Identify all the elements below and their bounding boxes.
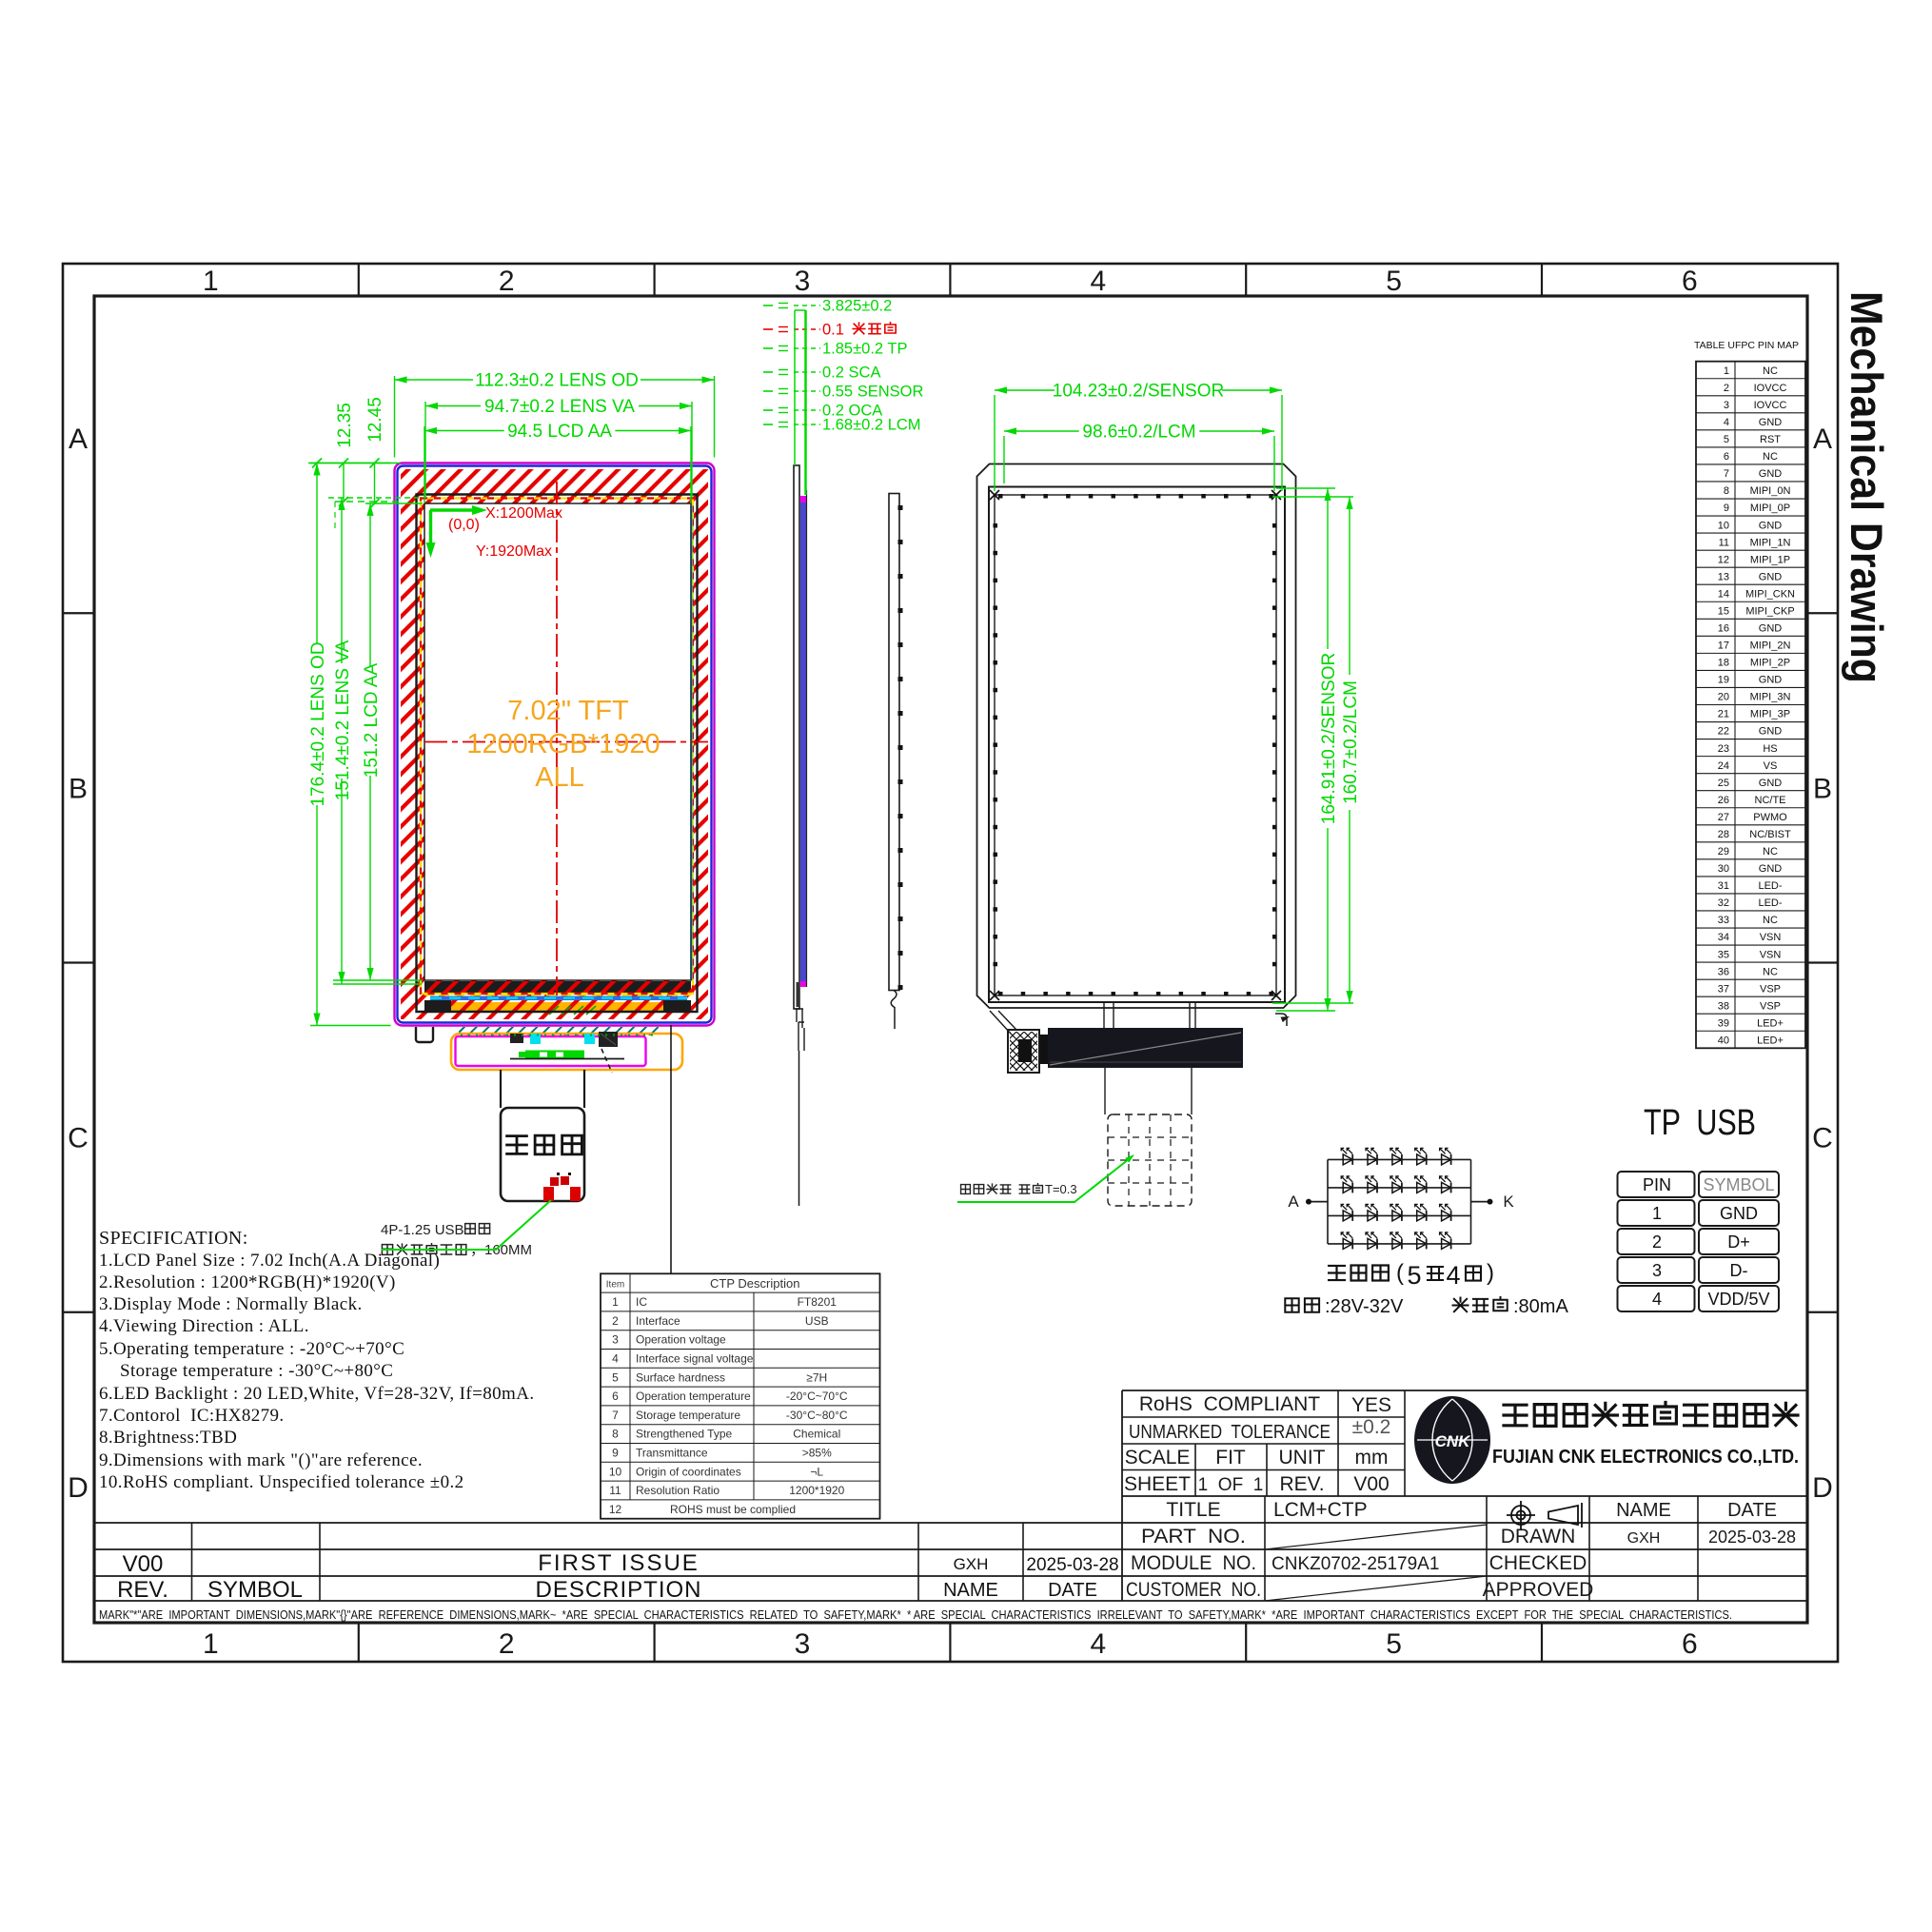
svg-text:VSN: VSN xyxy=(1760,949,1782,960)
svg-text:ALL: ALL xyxy=(535,762,584,793)
svg-text:4: 4 xyxy=(612,1352,619,1366)
svg-text:Chemical: Chemical xyxy=(793,1428,840,1441)
svg-text:16: 16 xyxy=(1718,623,1729,635)
svg-text:5: 5 xyxy=(612,1370,619,1384)
svg-text:FIRST ISSUE: FIRST ISSUE xyxy=(538,1550,700,1576)
svg-text:A: A xyxy=(1288,1193,1299,1211)
svg-text:2: 2 xyxy=(499,1628,515,1660)
svg-text:VSP: VSP xyxy=(1760,983,1781,995)
svg-text:21: 21 xyxy=(1718,709,1729,720)
svg-text:APPROVED: APPROVED xyxy=(1483,1579,1594,1601)
svg-text:UNMARKED TOLERANCE: UNMARKED TOLERANCE xyxy=(1129,1422,1331,1443)
svg-text:0.2 SCA: 0.2 SCA xyxy=(822,365,880,382)
svg-text:5: 5 xyxy=(1386,1628,1402,1660)
svg-text:MIPI_2P: MIPI_2P xyxy=(1750,658,1790,669)
svg-text:GND: GND xyxy=(1720,1204,1758,1223)
svg-text:Mechanical Drawing: Mechanical Drawing xyxy=(1842,291,1892,683)
svg-text:6: 6 xyxy=(1682,266,1698,297)
svg-text:FT8201: FT8201 xyxy=(798,1295,838,1309)
svg-text:SYMBOL: SYMBOL xyxy=(1703,1175,1774,1194)
svg-text:GND: GND xyxy=(1759,675,1783,686)
svg-text:PIN: PIN xyxy=(1643,1175,1671,1194)
svg-text:Interface signal voltage: Interface signal voltage xyxy=(636,1352,754,1366)
svg-text:20: 20 xyxy=(1718,692,1729,703)
svg-text:T=0.3: T=0.3 xyxy=(1045,1182,1077,1196)
svg-text:19: 19 xyxy=(1718,675,1729,686)
svg-text:Strengthened Type: Strengthened Type xyxy=(636,1428,733,1441)
svg-text:1.85±0.2 TP: 1.85±0.2 TP xyxy=(822,341,907,358)
svg-text:GXH: GXH xyxy=(954,1555,989,1573)
svg-text:2: 2 xyxy=(499,266,515,297)
svg-text:151.4±0.2 LENS VA: 151.4±0.2 LENS VA xyxy=(333,640,353,800)
svg-text:VSP: VSP xyxy=(1760,1000,1781,1012)
svg-text:K: K xyxy=(1503,1193,1514,1211)
svg-text:36: 36 xyxy=(1718,966,1729,977)
svg-text:1 OF 1: 1 OF 1 xyxy=(1198,1475,1264,1495)
svg-text:Storage temperature: Storage temperature xyxy=(636,1409,740,1422)
svg-text:Y:1920Max: Y:1920Max xyxy=(476,543,552,560)
svg-text:RoHS COMPLIANT: RoHS COMPLIANT xyxy=(1139,1393,1320,1415)
svg-text:32: 32 xyxy=(1718,897,1729,909)
svg-text:Surface hardness: Surface hardness xyxy=(636,1370,725,1384)
svg-text:MIPI_CKN: MIPI_CKN xyxy=(1745,588,1795,600)
svg-text:mm: mm xyxy=(1355,1447,1389,1469)
svg-text:REV.: REV. xyxy=(1279,1473,1324,1495)
svg-text:6: 6 xyxy=(612,1390,619,1403)
svg-text:MODULE NO.: MODULE NO. xyxy=(1131,1552,1256,1574)
svg-text:D-: D- xyxy=(1730,1261,1748,1280)
svg-text:29: 29 xyxy=(1718,846,1729,858)
svg-text:5: 5 xyxy=(1724,434,1729,445)
svg-text:UNIT: UNIT xyxy=(1279,1447,1326,1469)
svg-text:3: 3 xyxy=(1652,1261,1662,1280)
svg-text:5: 5 xyxy=(1407,1261,1421,1290)
svg-text:160.7±0.2/LCM: 160.7±0.2/LCM xyxy=(1341,680,1361,804)
svg-text:2: 2 xyxy=(1652,1232,1662,1252)
svg-text:GND: GND xyxy=(1759,623,1783,635)
svg-text:38: 38 xyxy=(1718,1000,1729,1012)
svg-text:): ) xyxy=(1487,1260,1494,1286)
svg-text:1: 1 xyxy=(1652,1204,1662,1223)
svg-text:3.Display Mode : Normally Blac: 3.Display Mode : Normally Black. xyxy=(99,1294,363,1314)
svg-text:MIPI_3P: MIPI_3P xyxy=(1750,709,1790,720)
svg-text:164.91±0.2/SENSOR: 164.91±0.2/SENSOR xyxy=(1319,653,1339,824)
svg-text:18: 18 xyxy=(1718,658,1729,669)
svg-text:>85%: >85% xyxy=(802,1447,832,1460)
svg-text:23: 23 xyxy=(1718,743,1729,755)
svg-text:13: 13 xyxy=(1718,571,1729,582)
svg-text:GND: GND xyxy=(1759,468,1783,480)
svg-text:SCALE: SCALE xyxy=(1125,1447,1191,1469)
svg-text:HS: HS xyxy=(1763,743,1777,755)
svg-text:TABLE UFPC PIN MAP: TABLE UFPC PIN MAP xyxy=(1694,340,1799,351)
svg-text:10: 10 xyxy=(1718,520,1729,531)
svg-text:9.Dimensions with mark "()"are: 9.Dimensions with mark "()"are reference… xyxy=(99,1450,423,1470)
svg-text:B: B xyxy=(69,773,88,804)
svg-text:30: 30 xyxy=(1718,863,1729,875)
svg-text:LED-: LED- xyxy=(1758,897,1782,909)
svg-text:IC: IC xyxy=(636,1295,647,1309)
svg-text:DESCRIPTION: DESCRIPTION xyxy=(535,1577,701,1603)
svg-text:22: 22 xyxy=(1718,726,1729,738)
svg-text:1.LCD Panel Size : 7.02 Inch(A: 1.LCD Panel Size : 7.02 Inch(A.A Diagona… xyxy=(99,1251,440,1271)
svg-text:VS: VS xyxy=(1764,760,1778,772)
svg-text:11: 11 xyxy=(609,1484,621,1497)
svg-text:15: 15 xyxy=(1718,605,1729,617)
svg-text:5: 5 xyxy=(1386,266,1402,297)
svg-text:±0.2: ±0.2 xyxy=(1352,1416,1391,1438)
svg-text::80mA: :80mA xyxy=(1513,1296,1568,1317)
svg-text:TP USB: TP USB xyxy=(1644,1103,1756,1143)
svg-text:NAME: NAME xyxy=(1616,1500,1671,1521)
svg-text:Item: Item xyxy=(606,1279,624,1290)
svg-text:1: 1 xyxy=(203,1628,219,1660)
svg-text:151.2 LCD AA: 151.2 LCD AA xyxy=(362,662,382,778)
svg-text:1: 1 xyxy=(612,1295,619,1309)
svg-text:V00: V00 xyxy=(1353,1473,1389,1495)
svg-text:≥7H: ≥7H xyxy=(806,1370,827,1384)
svg-text:1: 1 xyxy=(203,266,219,297)
svg-text:12.45: 12.45 xyxy=(365,397,385,443)
svg-text:1.68±0.2 LCM: 1.68±0.2 LCM xyxy=(822,417,921,434)
svg-text:MIPI_3N: MIPI_3N xyxy=(1750,692,1791,703)
svg-text:SPECIFICATION:: SPECIFICATION: xyxy=(99,1228,248,1249)
svg-text:NC: NC xyxy=(1763,915,1778,926)
svg-text:11: 11 xyxy=(1719,537,1729,548)
svg-text:Origin of coordinates: Origin of coordinates xyxy=(636,1465,741,1478)
svg-text:8: 8 xyxy=(612,1428,619,1441)
svg-text:NC: NC xyxy=(1763,846,1778,858)
svg-text:CNK: CNK xyxy=(1435,1432,1472,1450)
svg-text:3: 3 xyxy=(612,1333,619,1347)
svg-text:X:1200Max: X:1200Max xyxy=(485,505,562,522)
svg-text:1200RGB*1920: 1200RGB*1920 xyxy=(466,729,660,759)
svg-text:4.Viewing Direction : ALL.: 4.Viewing Direction : ALL. xyxy=(99,1316,309,1336)
svg-text:112.3±0.2 LENS OD: 112.3±0.2 LENS OD xyxy=(475,371,639,391)
svg-text:14: 14 xyxy=(1718,588,1729,600)
svg-text:NC/BIST: NC/BIST xyxy=(1749,829,1791,840)
svg-text:VDD/5V: VDD/5V xyxy=(1707,1290,1769,1309)
svg-text:(0,0): (0,0) xyxy=(448,517,480,533)
svg-text:YES: YES xyxy=(1351,1394,1391,1416)
svg-text:8: 8 xyxy=(1724,485,1729,497)
svg-text:9: 9 xyxy=(612,1447,619,1460)
svg-text:2: 2 xyxy=(612,1314,619,1328)
svg-text:GXH: GXH xyxy=(1627,1530,1661,1547)
svg-text:6.LED Backlight : 20 LED,White: 6.LED Backlight : 20 LED,White, Vf=28-32… xyxy=(99,1384,534,1404)
svg-text:DRAWN: DRAWN xyxy=(1501,1526,1576,1548)
svg-text:V00: V00 xyxy=(123,1551,164,1577)
svg-text:3: 3 xyxy=(1724,400,1729,411)
svg-text:GND: GND xyxy=(1759,726,1783,738)
svg-text:C: C xyxy=(1812,1123,1833,1154)
svg-text:1200*1920: 1200*1920 xyxy=(789,1484,844,1497)
svg-text:12.35: 12.35 xyxy=(335,403,355,448)
svg-text:3: 3 xyxy=(795,266,811,297)
svg-text:SHEET: SHEET xyxy=(1124,1473,1191,1495)
svg-text:3.825±0.2: 3.825±0.2 xyxy=(822,298,892,315)
svg-text:10.RoHS compliant. Unspecified: 10.RoHS compliant. Unspecified tolerance… xyxy=(99,1472,464,1492)
svg-text:CHECKED: CHECKED xyxy=(1489,1552,1587,1574)
svg-text:GND: GND xyxy=(1759,863,1783,875)
svg-text:12: 12 xyxy=(1718,554,1729,565)
svg-text:NAME: NAME xyxy=(943,1580,998,1601)
svg-text:2.Resolution : 1200*RGB(H)*192: 2.Resolution : 1200*RGB(H)*1920(V) xyxy=(99,1272,396,1292)
svg-text:PWMO: PWMO xyxy=(1753,812,1787,823)
svg-text:¬L: ¬L xyxy=(810,1465,823,1478)
svg-text:39: 39 xyxy=(1718,1017,1729,1029)
svg-text:104.23±0.2/SENSOR: 104.23±0.2/SENSOR xyxy=(1053,382,1224,402)
svg-text:8.Brightness:TBD: 8.Brightness:TBD xyxy=(99,1428,237,1448)
svg-text:4: 4 xyxy=(1090,1628,1106,1660)
svg-text:5.Operating temperature : -20°: 5.Operating temperature : -20°C~+70°C xyxy=(99,1339,404,1359)
svg-text:2025-03-28: 2025-03-28 xyxy=(1708,1528,1796,1547)
svg-text:NC/TE: NC/TE xyxy=(1755,795,1786,806)
svg-text:DATE: DATE xyxy=(1048,1580,1097,1601)
svg-text:IOVCC: IOVCC xyxy=(1754,400,1787,411)
svg-text:2025-03-28: 2025-03-28 xyxy=(1026,1555,1118,1575)
svg-text:SYMBOL: SYMBOL xyxy=(207,1577,303,1603)
svg-text:ROHS must be complied: ROHS must be complied xyxy=(670,1503,796,1516)
svg-text:MIPI_0N: MIPI_0N xyxy=(1750,485,1791,497)
svg-text:7: 7 xyxy=(612,1409,619,1422)
svg-text:34: 34 xyxy=(1718,932,1729,943)
svg-text:Interface: Interface xyxy=(636,1314,680,1328)
svg-text:A: A xyxy=(69,424,88,455)
svg-text:7: 7 xyxy=(1724,468,1729,480)
svg-text:94.7±0.2 LENS VA: 94.7±0.2 LENS VA xyxy=(484,397,635,417)
svg-text:176.4±0.2 LENS OD: 176.4±0.2 LENS OD xyxy=(308,641,328,806)
svg-text:0.55 SENSOR: 0.55 SENSOR xyxy=(822,384,923,401)
svg-text:B: B xyxy=(1813,773,1832,804)
svg-text:Resolution Ratio: Resolution Ratio xyxy=(636,1484,720,1497)
svg-text::28V-32V: :28V-32V xyxy=(1325,1296,1404,1317)
svg-text:1: 1 xyxy=(1724,365,1729,377)
svg-text:CNKZ0702-25179A1: CNKZ0702-25179A1 xyxy=(1272,1554,1439,1574)
svg-text:CTP Description: CTP Description xyxy=(710,1276,799,1291)
svg-text:GND: GND xyxy=(1759,571,1783,582)
svg-text:3: 3 xyxy=(795,1628,811,1660)
svg-text:24: 24 xyxy=(1718,760,1729,772)
svg-text:7.Contorol IC:HX8279.: 7.Contorol IC:HX8279. xyxy=(99,1406,285,1426)
svg-text:VSN: VSN xyxy=(1760,932,1782,943)
svg-text:0.1: 0.1 xyxy=(822,322,849,339)
svg-text:MIPI_1P: MIPI_1P xyxy=(1750,554,1790,565)
svg-text:37: 37 xyxy=(1718,983,1729,995)
svg-text:MIPI_0P: MIPI_0P xyxy=(1750,503,1790,514)
svg-text:GND: GND xyxy=(1759,520,1783,531)
svg-text:40: 40 xyxy=(1718,1035,1729,1046)
svg-text:4: 4 xyxy=(1724,417,1729,428)
svg-text:DATE: DATE xyxy=(1727,1500,1777,1521)
svg-text:4: 4 xyxy=(1446,1261,1460,1290)
svg-text:NC: NC xyxy=(1763,451,1778,463)
svg-text:26: 26 xyxy=(1718,795,1729,806)
svg-text:35: 35 xyxy=(1718,949,1729,960)
svg-text:2: 2 xyxy=(1724,383,1729,394)
svg-text:FIT: FIT xyxy=(1215,1447,1246,1469)
svg-text:A: A xyxy=(1813,424,1832,455)
svg-text:4: 4 xyxy=(1090,266,1106,297)
svg-text:4P-1.25 USB: 4P-1.25 USB xyxy=(381,1222,464,1238)
svg-text:Operation temperature: Operation temperature xyxy=(636,1390,751,1403)
svg-text:NC: NC xyxy=(1763,966,1778,977)
svg-text:33: 33 xyxy=(1718,915,1729,926)
svg-text:D+: D+ xyxy=(1727,1232,1750,1252)
svg-text:MIPI_2N: MIPI_2N xyxy=(1750,641,1791,652)
svg-text:LED-: LED- xyxy=(1758,880,1782,892)
svg-text:7.02" TFT: 7.02" TFT xyxy=(507,696,629,726)
svg-text:D: D xyxy=(68,1472,89,1504)
svg-text:9: 9 xyxy=(1724,503,1729,514)
svg-text:(: ( xyxy=(1396,1260,1404,1286)
svg-text:USB: USB xyxy=(805,1314,829,1328)
svg-text:NC: NC xyxy=(1763,365,1778,377)
svg-text:MIPI_CKP: MIPI_CKP xyxy=(1745,605,1794,617)
svg-text:17: 17 xyxy=(1718,641,1729,652)
svg-text:Operation voltage: Operation voltage xyxy=(636,1333,726,1347)
svg-text:Transmittance: Transmittance xyxy=(636,1447,708,1460)
svg-text:LCM+CTP: LCM+CTP xyxy=(1273,1499,1368,1521)
svg-text:LED+: LED+ xyxy=(1757,1017,1784,1029)
svg-text:31: 31 xyxy=(1718,880,1729,892)
svg-text:TITLE: TITLE xyxy=(1166,1499,1220,1521)
svg-text:-30°C~80°C: -30°C~80°C xyxy=(786,1409,848,1422)
svg-text:25: 25 xyxy=(1718,778,1729,789)
svg-text:D: D xyxy=(1812,1472,1833,1504)
svg-text:PART NO.: PART NO. xyxy=(1141,1526,1246,1548)
svg-text:4: 4 xyxy=(1652,1290,1662,1309)
svg-text:10: 10 xyxy=(609,1465,622,1478)
svg-text:RST: RST xyxy=(1760,434,1781,445)
svg-text:GND: GND xyxy=(1759,417,1783,428)
svg-text:Storage temperature : -30°C~+8: Storage temperature : -30°C~+80°C xyxy=(120,1361,393,1381)
svg-text:FUJIAN CNK ELECTRONICS CO.,LTD: FUJIAN CNK ELECTRONICS CO.,LTD. xyxy=(1492,1447,1799,1468)
svg-text:MARK"*"ARE IMPORTANT DIMENSI: MARK"*"ARE IMPORTANT DIMENSIONS,MARK"{}"… xyxy=(99,1607,1732,1622)
svg-text:27: 27 xyxy=(1718,812,1729,823)
svg-text:C: C xyxy=(68,1123,89,1154)
svg-text:IOVCC: IOVCC xyxy=(1754,383,1787,394)
svg-text:REV.: REV. xyxy=(117,1577,168,1603)
svg-text:GND: GND xyxy=(1759,778,1783,789)
svg-text:12: 12 xyxy=(609,1503,622,1516)
svg-text:-20°C~70°C: -20°C~70°C xyxy=(786,1390,848,1403)
svg-text:MIPI_1N: MIPI_1N xyxy=(1750,537,1791,548)
svg-text:94.5 LCD AA: 94.5 LCD AA xyxy=(507,422,612,442)
svg-text:LED+: LED+ xyxy=(1757,1035,1784,1046)
svg-text:28: 28 xyxy=(1718,829,1729,840)
svg-text:6: 6 xyxy=(1724,451,1729,463)
svg-text:CUSTOMER NO.: CUSTOMER NO. xyxy=(1126,1579,1261,1601)
svg-text:98.6±0.2/LCM: 98.6±0.2/LCM xyxy=(1082,423,1195,443)
svg-text:6: 6 xyxy=(1682,1628,1698,1660)
